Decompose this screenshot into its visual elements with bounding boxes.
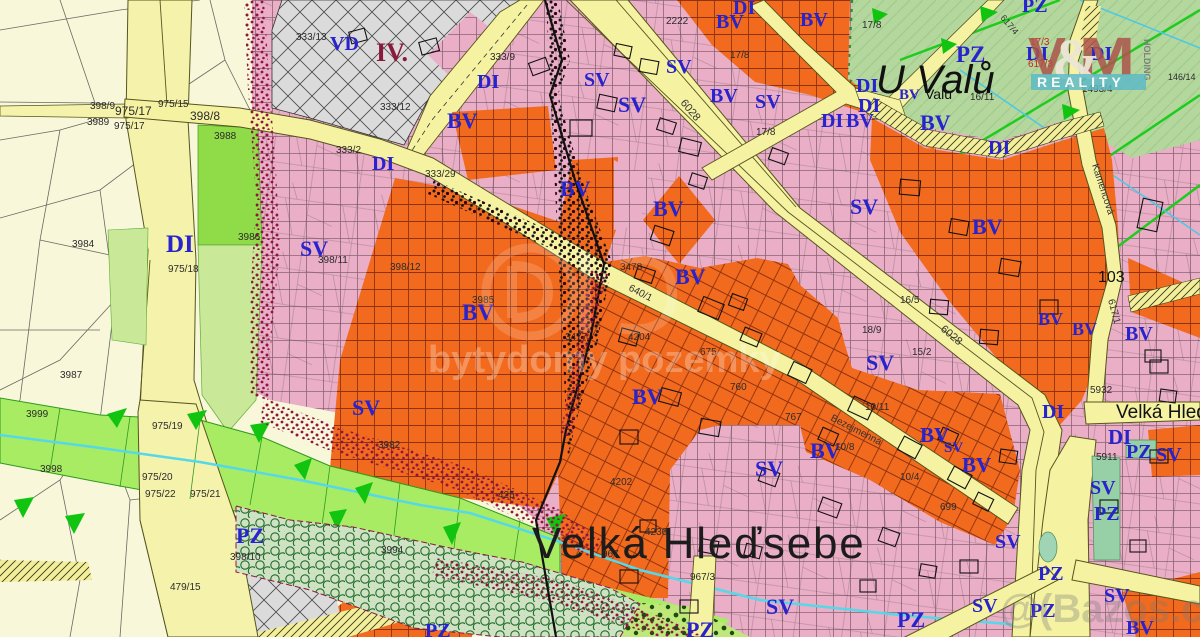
svg-text:425: 425 — [498, 490, 515, 501]
svg-text:BV: BV — [846, 110, 874, 132]
svg-text:DI: DI — [1042, 401, 1064, 423]
svg-text:398/9: 398/9 — [90, 101, 115, 112]
svg-text:BV: BV — [962, 453, 991, 477]
svg-text:760: 760 — [730, 382, 747, 393]
svg-text:SV: SV — [995, 531, 1021, 553]
svg-text:975/17: 975/17 — [114, 121, 145, 132]
svg-text:BV: BV — [1072, 319, 1097, 339]
svg-text:BV: BV — [632, 384, 663, 409]
svg-text:DI: DI — [372, 153, 394, 175]
svg-text:DI: DI — [166, 231, 194, 258]
svg-text:Velká Hled: Velká Hled — [1116, 402, 1200, 423]
svg-text:IV.: IV. — [376, 38, 408, 67]
svg-text:975/22: 975/22 — [145, 489, 176, 500]
svg-text:DI: DI — [477, 71, 499, 93]
svg-text:PZ: PZ — [1038, 563, 1064, 585]
svg-text:PZ: PZ — [1094, 503, 1120, 525]
svg-text:767: 767 — [785, 412, 802, 423]
svg-text:15/2: 15/2 — [912, 347, 932, 358]
svg-text:3999: 3999 — [26, 409, 49, 420]
svg-text:BV: BV — [710, 85, 738, 107]
svg-text:BV: BV — [899, 87, 920, 103]
svg-text:10/8: 10/8 — [835, 442, 855, 453]
svg-text:DI: DI — [733, 0, 755, 19]
svg-text:SV: SV — [584, 69, 610, 91]
svg-text:@(Bazos.cz: @(Bazos.cz — [1000, 587, 1200, 631]
svg-text:3989: 3989 — [87, 117, 110, 128]
svg-text:967: 967 — [602, 549, 619, 560]
svg-text:17/8: 17/8 — [862, 20, 882, 31]
svg-text:3987: 3987 — [60, 370, 83, 381]
svg-text:4236: 4236 — [645, 527, 668, 538]
svg-text:699: 699 — [940, 502, 957, 513]
svg-text:333/29: 333/29 — [425, 169, 456, 180]
svg-text:DI: DI — [988, 137, 1010, 159]
svg-text:bytydomy pozemky: bytydomy pozemky — [428, 339, 781, 381]
svg-text:398/12: 398/12 — [390, 262, 421, 273]
svg-text:BV: BV — [1125, 323, 1153, 345]
svg-text:17/8: 17/8 — [756, 127, 776, 138]
svg-text:398/8: 398/8 — [190, 109, 220, 123]
svg-text:SV: SV — [352, 395, 380, 420]
svg-text:16/5: 16/5 — [900, 295, 920, 306]
svg-text:PZ: PZ — [425, 620, 451, 637]
svg-text:398/10: 398/10 — [230, 552, 261, 563]
svg-text:5911: 5911 — [1096, 452, 1118, 463]
svg-text:4202: 4202 — [610, 477, 633, 488]
svg-text:PZ: PZ — [1126, 441, 1152, 463]
svg-text:398/11: 398/11 — [318, 255, 348, 266]
svg-text:SV: SV — [972, 595, 998, 617]
svg-text:REALITY: REALITY — [1037, 74, 1125, 90]
svg-text:BV: BV — [560, 176, 591, 201]
svg-text:975/19: 975/19 — [152, 421, 183, 432]
svg-text:5932: 5932 — [1090, 385, 1113, 396]
svg-text:3988: 3988 — [214, 131, 237, 142]
svg-text:333/12: 333/12 — [380, 102, 411, 113]
svg-text:BV: BV — [653, 196, 684, 221]
svg-text:BV: BV — [675, 264, 706, 289]
svg-text:333/2: 333/2 — [336, 145, 361, 156]
svg-text:3984: 3984 — [72, 239, 95, 250]
svg-text:16/11: 16/11 — [970, 92, 995, 103]
svg-text:3986: 3986 — [238, 232, 261, 243]
svg-text:BV: BV — [447, 108, 478, 133]
svg-text:SV: SV — [850, 194, 878, 219]
svg-text:975/20: 975/20 — [142, 472, 173, 483]
svg-text:Velká Hleďsebe: Velká Hleďsebe — [532, 519, 866, 568]
svg-text:146/14: 146/14 — [1168, 72, 1196, 82]
svg-text:975/18: 975/18 — [168, 264, 199, 275]
svg-text:3982: 3982 — [378, 440, 401, 451]
svg-text:SV: SV — [766, 594, 794, 619]
svg-text:103: 103 — [1098, 269, 1125, 286]
svg-text:3994: 3994 — [381, 545, 404, 556]
svg-text:17/8: 17/8 — [730, 50, 750, 61]
svg-text:BV: BV — [972, 214, 1003, 239]
svg-text:BV: BV — [800, 9, 828, 31]
svg-text:SV: SV — [666, 56, 692, 78]
svg-text:SV: SV — [755, 91, 781, 113]
svg-text:2222: 2222 — [666, 16, 689, 27]
svg-text:Valu: Valu — [925, 86, 952, 102]
svg-text:975/15: 975/15 — [158, 99, 189, 110]
svg-text:DI: DI — [821, 110, 843, 132]
svg-text:SV: SV — [866, 350, 894, 375]
svg-text:975/17: 975/17 — [115, 104, 152, 118]
svg-text:PZ: PZ — [1022, 0, 1048, 17]
svg-text:3998: 3998 — [40, 464, 63, 475]
svg-text:SV: SV — [944, 440, 963, 456]
svg-text:333/13: 333/13 — [296, 32, 327, 43]
svg-text:SV: SV — [755, 456, 783, 481]
svg-text:967/3: 967/3 — [690, 572, 715, 583]
svg-text:10/4: 10/4 — [900, 472, 920, 483]
svg-text:BV: BV — [920, 110, 951, 135]
svg-text:975/21: 975/21 — [190, 489, 221, 500]
svg-text:18/9: 18/9 — [862, 325, 882, 336]
svg-text:333/9: 333/9 — [490, 52, 515, 63]
svg-text:SV: SV — [618, 92, 646, 117]
svg-text:SV: SV — [1156, 444, 1182, 466]
svg-text:VD: VD — [330, 33, 359, 55]
svg-text:PZ: PZ — [686, 617, 714, 637]
svg-text:PZ: PZ — [236, 523, 264, 548]
svg-text:BV: BV — [1038, 309, 1063, 329]
svg-text:10/11: 10/11 — [865, 402, 890, 413]
svg-text:PZ: PZ — [897, 607, 925, 632]
svg-text:SV: SV — [1090, 477, 1116, 499]
svg-text:479/15: 479/15 — [170, 582, 201, 593]
